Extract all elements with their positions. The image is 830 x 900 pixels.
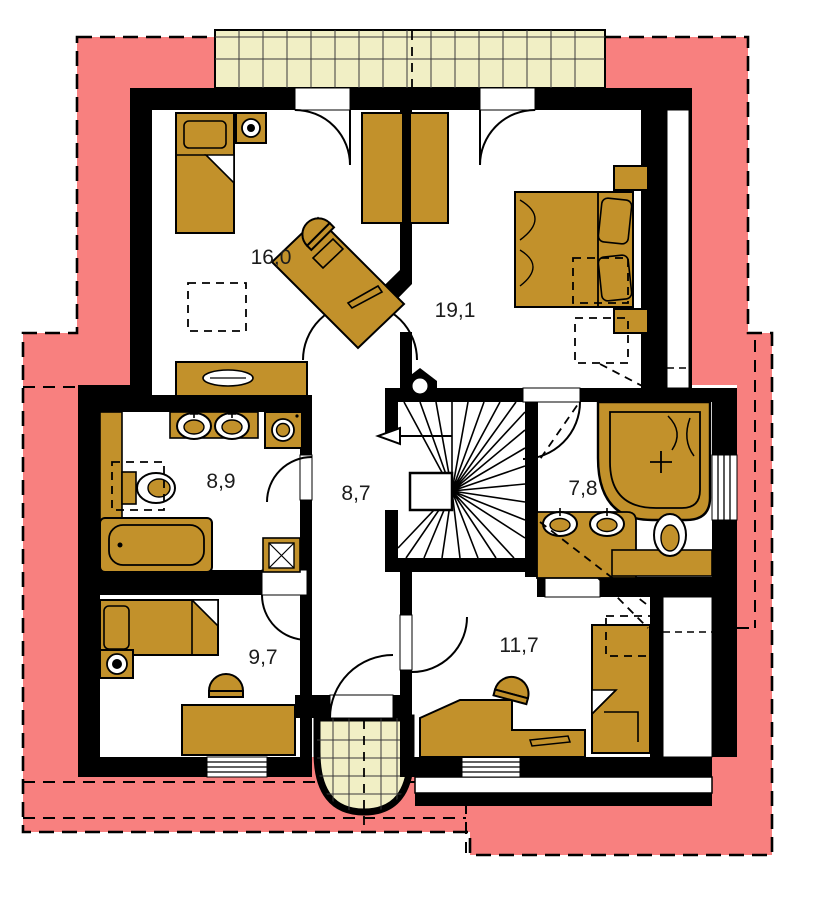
lower-eave-strip (415, 777, 712, 806)
sink-basin (597, 519, 617, 532)
balcony-door-left-opening (295, 88, 350, 110)
floor-plan-svg: 16,0 19,1 8,9 8,7 7,8 9,7 11,7 (0, 0, 830, 900)
storage-strip (663, 597, 712, 757)
balcony-top (215, 30, 605, 88)
bed (592, 625, 650, 753)
wardrobe (362, 113, 403, 223)
room-label-bathroom-left: 8,9 (206, 470, 235, 493)
nightstand (614, 309, 648, 333)
bedroom-lower-right-door-opening (400, 615, 412, 670)
wardrobe (410, 113, 448, 223)
sink-basin (222, 420, 242, 434)
bathroom-left-door-opening (300, 455, 312, 500)
floor-plan-page: 16,0 19,1 8,9 8,7 7,8 9,7 11,7 (0, 0, 830, 900)
balcony-door-right-opening (480, 88, 535, 110)
furniture-bedroom-upper-right (515, 166, 648, 333)
room-label-bedroom-lower-left: 9,7 (248, 646, 277, 669)
nightstand (614, 166, 648, 190)
room-label-bedroom-lower-right: 11,7 (499, 634, 538, 657)
room-label-bedroom-upper-right: 19,1 (435, 299, 476, 322)
toilet-tank (122, 472, 136, 504)
sink-basin (550, 519, 570, 532)
room-label-hallway: 8,7 (341, 482, 370, 505)
corner-bathtub (598, 402, 710, 520)
stair-entry-opening (385, 435, 398, 510)
drain (118, 543, 123, 548)
pillow (598, 198, 632, 245)
knee-space-strip (667, 110, 689, 388)
pillow (598, 255, 632, 302)
stair-newel (410, 473, 452, 510)
desk (182, 705, 295, 755)
sink-basin (184, 420, 204, 434)
room-label-bathroom-right: 7,8 (568, 477, 597, 500)
toilet-basin (661, 525, 679, 551)
pillow (184, 121, 226, 148)
hall-door-opening (545, 577, 600, 597)
bathroom-right-door-opening (523, 388, 580, 402)
bedroom-lower-left-door-opening (262, 570, 307, 595)
toilet-basin (148, 479, 170, 497)
pillow (104, 606, 129, 649)
balcony-bottom-door-opening (330, 695, 393, 718)
room-label-bedroom-upper-left: 16,0 (251, 246, 292, 269)
